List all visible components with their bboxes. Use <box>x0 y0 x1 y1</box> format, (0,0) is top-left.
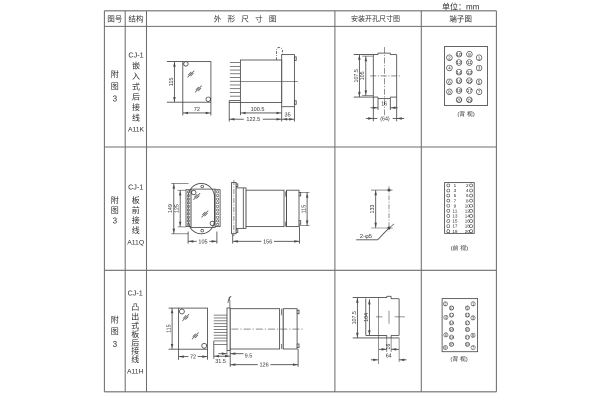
svg-text:接: 接 <box>131 346 139 356</box>
svg-text:7: 7 <box>478 89 481 94</box>
svg-text:18: 18 <box>449 335 454 340</box>
svg-text:6: 6 <box>448 79 451 84</box>
svg-text:14: 14 <box>449 320 454 325</box>
svg-text:图: 图 <box>111 82 119 91</box>
svg-text:CJ-1: CJ-1 <box>128 51 143 60</box>
svg-text:3: 3 <box>113 216 118 225</box>
svg-text:105: 105 <box>360 71 366 80</box>
svg-text:100.5: 100.5 <box>251 107 265 113</box>
svg-text:附: 附 <box>111 314 119 324</box>
svg-text:A11H: A11H <box>127 369 144 376</box>
svg-text:31.5: 31.5 <box>215 359 226 365</box>
svg-text:13: 13 <box>467 70 473 75</box>
svg-text:12: 12 <box>456 60 462 65</box>
svg-text:12: 12 <box>449 313 454 318</box>
svg-text:(前 视): (前 视) <box>451 244 468 252</box>
svg-text:9: 9 <box>468 52 471 57</box>
svg-text:接: 接 <box>132 102 140 112</box>
svg-text:133: 133 <box>370 205 376 214</box>
svg-text:16: 16 <box>381 101 387 107</box>
svg-text:式: 式 <box>132 81 140 91</box>
svg-text:安装开孔尺寸图: 安装开孔尺寸图 <box>351 14 400 23</box>
svg-text:15: 15 <box>467 78 473 83</box>
svg-text:104: 104 <box>364 313 370 322</box>
svg-text:107.5: 107.5 <box>352 311 358 324</box>
svg-text:115: 115 <box>169 78 175 87</box>
svg-text:18: 18 <box>456 88 462 93</box>
svg-text:图: 图 <box>111 327 119 336</box>
svg-text:16: 16 <box>386 344 392 350</box>
svg-text:19: 19 <box>467 97 473 102</box>
svg-text:1: 1 <box>478 55 481 60</box>
svg-text:式: 式 <box>131 321 139 331</box>
svg-text:8: 8 <box>448 89 451 94</box>
svg-text:CJ-1: CJ-1 <box>128 289 143 298</box>
svg-text:115: 115 <box>302 205 308 213</box>
svg-text:附: 附 <box>111 69 119 79</box>
svg-text:20: 20 <box>449 342 454 347</box>
svg-text:凸: 凸 <box>131 303 139 312</box>
svg-text:结构: 结构 <box>128 13 144 23</box>
svg-text:(背 视): (背 视) <box>457 110 474 118</box>
svg-text:14: 14 <box>456 70 462 75</box>
svg-text:9.5: 9.5 <box>245 353 253 359</box>
svg-text:3: 3 <box>478 66 481 71</box>
svg-text:附: 附 <box>111 195 119 205</box>
svg-text:20: 20 <box>456 97 462 102</box>
svg-text:17: 17 <box>467 88 473 93</box>
svg-text:单位：mm: 单位：mm <box>442 1 480 11</box>
svg-text:CJ-1: CJ-1 <box>128 182 143 191</box>
svg-text:出: 出 <box>131 311 139 321</box>
svg-text:149: 149 <box>168 204 174 213</box>
svg-text:122.5: 122.5 <box>246 117 260 123</box>
svg-text:16: 16 <box>456 78 462 83</box>
svg-text:10: 10 <box>449 306 454 311</box>
svg-text:线: 线 <box>132 225 140 235</box>
svg-text:线: 线 <box>131 354 139 364</box>
svg-text:11: 11 <box>465 313 470 318</box>
svg-text:图: 图 <box>111 206 119 215</box>
svg-text:5: 5 <box>478 79 481 84</box>
svg-text:图号: 图号 <box>107 14 123 23</box>
svg-text:(64): (64) <box>380 116 390 122</box>
svg-text:126: 126 <box>260 363 269 369</box>
svg-text:后: 后 <box>132 92 140 102</box>
svg-text:72: 72 <box>194 107 200 113</box>
svg-text:11: 11 <box>467 60 472 65</box>
svg-text:前: 前 <box>132 205 140 215</box>
svg-text:接: 接 <box>132 215 140 225</box>
svg-text:15: 15 <box>465 327 470 332</box>
svg-text:19: 19 <box>452 229 458 234</box>
svg-text:3: 3 <box>113 94 118 103</box>
svg-text:107.5: 107.5 <box>354 69 360 82</box>
svg-text:A11K: A11K <box>128 126 145 133</box>
svg-text:64: 64 <box>386 354 392 360</box>
svg-text:外形尺寸图: 外形尺寸图 <box>214 13 283 23</box>
svg-text:嵌: 嵌 <box>132 62 140 71</box>
svg-text:17: 17 <box>465 335 470 340</box>
svg-text:端子图: 端子图 <box>449 13 472 23</box>
svg-text:20: 20 <box>465 229 471 234</box>
svg-text:(背 视): (背 视) <box>450 355 467 363</box>
svg-text:2: 2 <box>448 55 451 60</box>
svg-text:10: 10 <box>456 52 462 57</box>
svg-text:2-φ5: 2-φ5 <box>360 234 373 240</box>
svg-text:4: 4 <box>448 66 451 71</box>
svg-text:16: 16 <box>449 327 454 332</box>
svg-text:19: 19 <box>465 342 470 347</box>
svg-text:线: 线 <box>132 113 140 123</box>
svg-text:35: 35 <box>285 113 291 119</box>
svg-text:板: 板 <box>132 195 140 205</box>
svg-text:125: 125 <box>175 204 181 213</box>
svg-text:115: 115 <box>167 324 173 332</box>
svg-text:13: 13 <box>465 320 470 325</box>
svg-text:3: 3 <box>113 340 118 349</box>
svg-text:156: 156 <box>263 239 272 245</box>
svg-text:105: 105 <box>198 239 207 245</box>
svg-text:入: 入 <box>132 72 140 81</box>
svg-text:A11Q: A11Q <box>127 239 144 246</box>
svg-text:72: 72 <box>190 355 196 361</box>
